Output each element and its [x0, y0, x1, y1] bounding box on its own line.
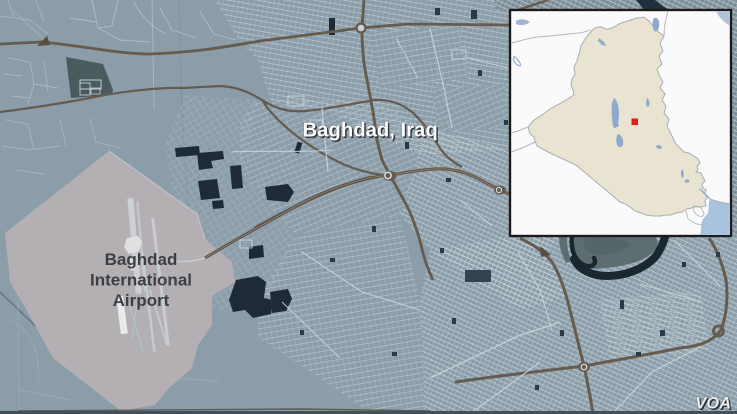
svg-text:Airport: Airport — [113, 291, 170, 310]
svg-text:VOA: VOA — [695, 395, 731, 413]
svg-text:Baghdad: Baghdad — [105, 250, 178, 269]
svg-text:Baghdad, Iraq: Baghdad, Iraq — [303, 119, 438, 141]
svg-text:International: International — [90, 271, 192, 290]
